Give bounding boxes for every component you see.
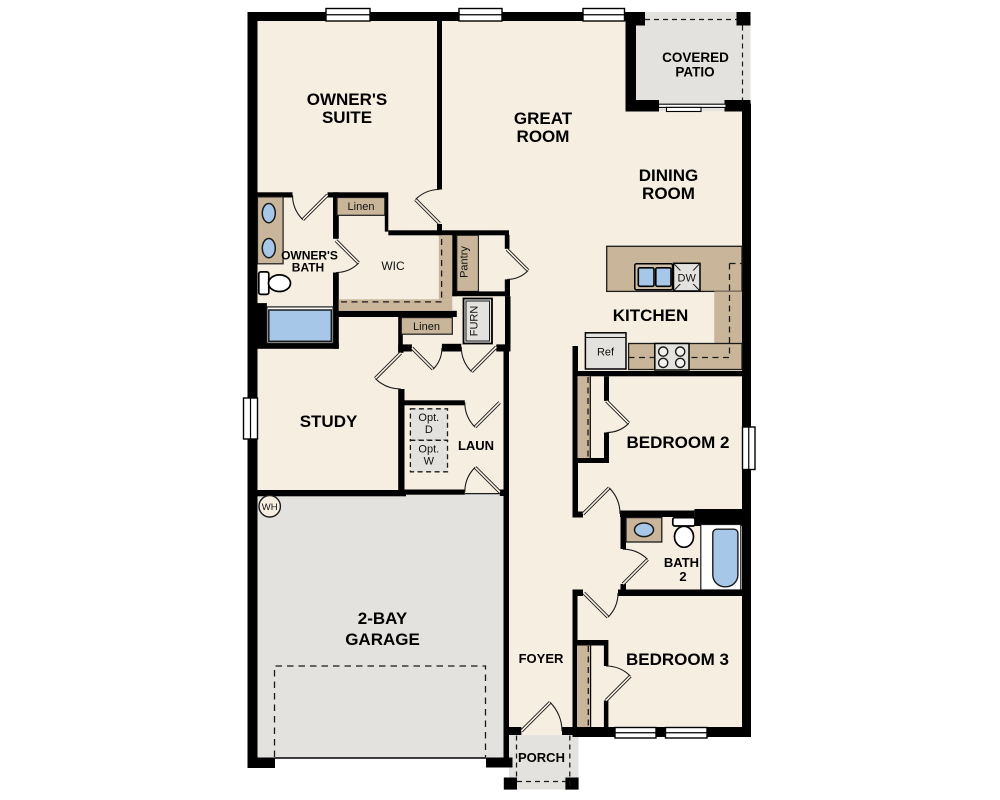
svg-text:W: W [424, 456, 435, 468]
svg-text:Linen: Linen [348, 201, 375, 213]
svg-text:PATIO: PATIO [675, 65, 714, 80]
svg-text:Pantry: Pantry [459, 246, 471, 278]
svg-text:BATH: BATH [292, 261, 324, 275]
svg-text:2-BAY: 2-BAY [358, 609, 408, 628]
svg-text:SUITE: SUITE [322, 108, 372, 127]
svg-text:Opt.: Opt. [418, 412, 439, 424]
svg-text:Linen: Linen [413, 321, 440, 333]
svg-text:BEDROOM 3: BEDROOM 3 [626, 650, 729, 669]
svg-text:FOYER: FOYER [519, 651, 564, 666]
svg-text:BEDROOM 2: BEDROOM 2 [627, 433, 730, 452]
svg-text:D: D [425, 424, 433, 436]
svg-text:DINING: DINING [639, 166, 699, 185]
svg-text:ROOM: ROOM [642, 184, 695, 203]
svg-text:DW: DW [678, 273, 697, 285]
svg-text:GARAGE: GARAGE [345, 630, 420, 649]
svg-text:FURN: FURN [469, 306, 481, 337]
svg-text:COVERED: COVERED [662, 50, 729, 65]
svg-text:KITCHEN: KITCHEN [613, 306, 689, 325]
svg-text:WIC: WIC [381, 259, 405, 273]
svg-text:2: 2 [679, 569, 686, 584]
svg-text:BATH: BATH [664, 555, 699, 570]
svg-text:STUDY: STUDY [300, 412, 358, 431]
svg-text:WH: WH [262, 502, 278, 513]
svg-text:OWNER'S: OWNER'S [307, 90, 388, 109]
svg-text:Ref: Ref [597, 347, 615, 359]
svg-text:Opt.: Opt. [418, 444, 439, 456]
svg-text:PORCH: PORCH [518, 750, 565, 765]
svg-text:ROOM: ROOM [517, 127, 570, 146]
svg-text:GREAT: GREAT [514, 109, 573, 128]
svg-text:LAUN: LAUN [458, 438, 494, 453]
